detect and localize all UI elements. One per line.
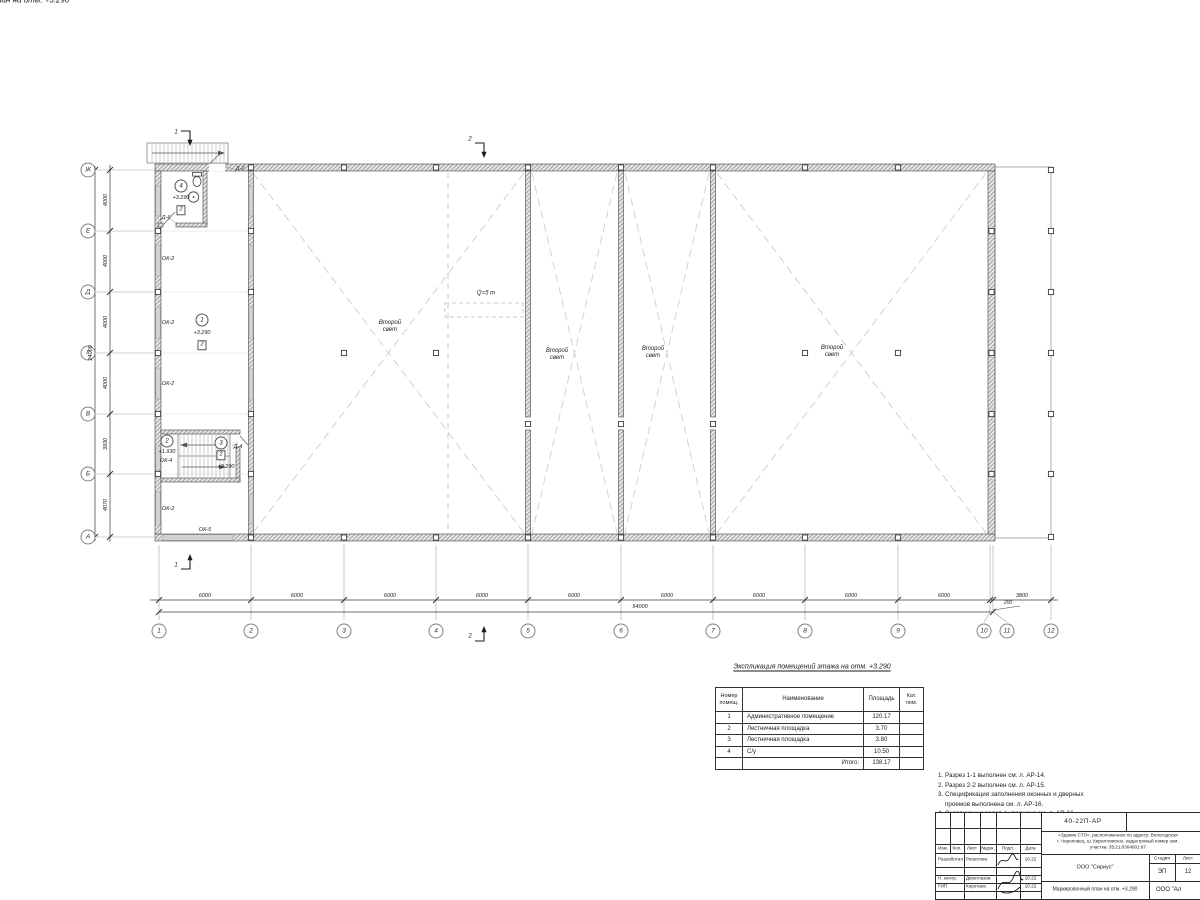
door-label: Д-2: [236, 166, 245, 172]
tb-drawing-title: Маркировочный план на отм. +3.290: [1053, 888, 1138, 893]
axis-bubble-7: 7: [706, 624, 721, 639]
tb-address-line: г. Череповец, ш. Кирилловское, кадастров…: [1057, 840, 1178, 845]
section-marks: [181, 131, 487, 641]
cell-area: 120.17: [864, 712, 900, 724]
door-label: Д-6: [162, 215, 171, 221]
dimension-lines: [95, 165, 1058, 612]
table-row: 4 С/у 10.50: [716, 746, 924, 758]
axis-bubble-2: 2: [244, 624, 259, 639]
cell-area: 3.80: [864, 735, 900, 747]
tb-organization: ООО "Сириус": [1077, 865, 1114, 871]
tb-col-ndok: №док.: [981, 846, 994, 851]
axis-bubble-v: В: [81, 407, 96, 422]
tb-role: Разработал: [938, 858, 963, 863]
cell-name: С/у: [743, 746, 864, 758]
axis-bubble-1: 1: [152, 624, 167, 639]
dimension-ticks: [92, 167, 1054, 615]
crane-capacity-label: Q=5 т: [477, 291, 495, 298]
tb-col-list: Лист: [967, 846, 977, 851]
tb-stage-value: ЭП: [1158, 869, 1167, 875]
section-mark-label: 2: [468, 634, 471, 641]
dim-label: 4000: [103, 255, 109, 267]
dim-label-total-height: 24000: [88, 345, 94, 360]
page-title: Маркировочный план на отм. +3.290: [0, 0, 69, 5]
cell-num: 3: [716, 735, 743, 747]
explication-title: Экспликация помещений этажа на отм. +3.2…: [733, 664, 890, 671]
window-openings: [156, 186, 253, 540]
sanitary-fixtures: [188, 173, 201, 203]
tb-role: Н. контр.: [938, 877, 957, 882]
door-opening-d2: [209, 164, 225, 172]
grid-extension-lines: [96, 170, 1051, 622]
note-line: 1. Разрез 1-1 выполнен см. л. АР-14.: [938, 771, 1084, 781]
dim-label: 4070: [103, 499, 109, 511]
cell-cat: [900, 735, 924, 747]
dim-label: 6000: [476, 593, 488, 599]
room-elevation: +1.930: [159, 449, 176, 455]
axis-bubble-5: 5: [521, 624, 536, 639]
dim-label-gap: 200: [1004, 601, 1012, 607]
cell-num: [716, 758, 743, 770]
axis-bubble-10: 10: [977, 624, 992, 639]
table-total-row: Итого: 138.17: [716, 758, 924, 770]
tb-doc-number: 40-22П-АР: [1064, 819, 1102, 826]
tb-name: Коротаев: [966, 885, 986, 890]
dim-label: 6000: [291, 593, 303, 599]
table-row: 2 Лестничная площадка 3.70: [716, 723, 924, 735]
tb-sheet-label: Лист: [1183, 856, 1193, 861]
floor-plan-linework: [0, 0, 1200, 900]
table-row: 3 Лестничная площадка 3.80: [716, 735, 924, 747]
col-header-area: Площадь: [864, 688, 900, 712]
dim-label: 3800: [1016, 593, 1028, 599]
col-header-category: Кат. пом.: [900, 688, 924, 712]
room-number-badge: 2: [161, 435, 174, 448]
dim-label-total-width: 54000: [632, 604, 647, 610]
dim-label: 4000: [103, 377, 109, 389]
room-category-badge: 2: [216, 450, 225, 460]
cell-cat: [900, 758, 924, 770]
axis-bubble-d: Д: [81, 285, 96, 300]
room-elevation: +3.290: [218, 464, 235, 470]
tb-stage-label: Стадия: [1154, 856, 1170, 861]
crane-runway: [445, 173, 523, 533]
section-mark-label: 2: [468, 137, 471, 144]
total-label: Итого:: [743, 758, 864, 770]
dim-label: 3930: [103, 438, 109, 450]
cell-cat: [900, 746, 924, 758]
window-label: ОК-2: [162, 381, 174, 387]
canopy-outline: [995, 167, 1051, 538]
door-label: Д-4: [234, 444, 243, 450]
signature-scribble: [996, 854, 1020, 868]
cell-num: 2: [716, 723, 743, 735]
axis-bubble-b: Б: [81, 467, 96, 482]
dim-label: 4000: [103, 316, 109, 328]
cell-num: 4: [716, 746, 743, 758]
dim-label: 6000: [199, 593, 211, 599]
signature-scribble: [994, 871, 1024, 895]
note-line: 3. Спецификация заполнения оконных и две…: [938, 790, 1084, 800]
axis-bubble-zh: Ж: [81, 163, 96, 178]
window-label: ОК-2: [162, 320, 174, 326]
columns: [155, 165, 1053, 540]
room-number-badge: 3: [215, 437, 228, 450]
note-line: проемов выполнена см. л. АР-16.: [938, 800, 1084, 810]
axis-bubble-3: 3: [337, 624, 352, 639]
dim-label: 6000: [938, 593, 950, 599]
cell-cat: [900, 723, 924, 735]
axis-bubble-9: 9: [891, 624, 906, 639]
cell-name: Лестничная площадка: [743, 723, 864, 735]
grid-lines-interior: [162, 231, 248, 474]
note-line: 2. Разрез 2-2 выполнен см. л. АР-15.: [938, 781, 1084, 791]
room-category-badge: 2: [176, 205, 185, 215]
tb-role: ГИП: [938, 885, 947, 890]
cell-name: Административное помещение: [743, 712, 864, 724]
axis-bubble-6: 6: [614, 624, 629, 639]
tb-name: Двоеглазов: [966, 877, 990, 882]
col-header-room-number: Номер помещ.: [716, 688, 743, 712]
axis-bubble-4: 4: [429, 624, 444, 639]
room-category-badge: 2: [197, 340, 206, 350]
room-number-badge: 4: [175, 180, 188, 193]
col-header-name: Наименование: [743, 688, 864, 712]
exterior-stair: [147, 143, 228, 163]
tb-date: 10.22: [1025, 877, 1037, 882]
second-light-label: Второй свет: [814, 345, 850, 359]
room-elevation: +3.290: [194, 330, 211, 336]
explication-table: Номер помещ. Наименование Площадь Кат. п…: [715, 687, 924, 770]
tb-name: Решетова: [966, 858, 987, 863]
axis-bubble-a: А: [81, 530, 96, 545]
tb-col-kol: Кол.: [952, 846, 961, 851]
title-block: Изм. Кол. Лист №док. Подл. Дата Разработ…: [935, 812, 1200, 900]
table-row: 1 Административное помещение 120.17: [716, 712, 924, 724]
total-value: 138.17: [864, 758, 900, 770]
cell-cat: [900, 712, 924, 724]
tb-address-line: «Здание СТО», расположенное по адресу: В…: [1058, 834, 1177, 839]
dim-label: 6000: [753, 593, 765, 599]
second-light-label: Второй свет: [539, 348, 575, 362]
cell-name: Лестничная площадка: [743, 735, 864, 747]
tb-date: 10.22: [1025, 858, 1037, 863]
tb-col-izm: Изм.: [938, 846, 948, 851]
second-light-label: Второй свет: [372, 320, 408, 334]
tb-date: 10.22: [1025, 885, 1037, 890]
axis-bubble-11: 11: [1000, 624, 1015, 639]
section-mark-label: 1: [174, 563, 177, 570]
tb-col-date: Дата: [1025, 846, 1035, 851]
window-label: ОК-5: [199, 527, 211, 533]
dim-label: 6000: [661, 593, 673, 599]
room-number-badge: 1: [196, 314, 209, 327]
tb-organization-2: ООО "Ал: [1156, 887, 1181, 893]
axis-bubble-8: 8: [798, 624, 813, 639]
dim-label: 6000: [384, 593, 396, 599]
tb-address-line: участка: 35:21:0304001:67: [1090, 846, 1146, 851]
dim-label: 6000: [568, 593, 580, 599]
window-label: ОК-2: [162, 256, 174, 262]
cell-num: 1: [716, 712, 743, 724]
drawing-sheet: Маркировочный план на отм. +3.290 1 2 3 …: [0, 0, 1200, 900]
section-mark-label: 1: [174, 130, 177, 137]
dim-label: 4000: [103, 194, 109, 206]
room-elevation: +3.290: [173, 195, 190, 201]
axis-bubble-e: Е: [81, 224, 96, 239]
tb-sheet-value: 12: [1185, 869, 1192, 875]
window-label: ОК-2: [162, 506, 174, 512]
dim-label: 6000: [845, 593, 857, 599]
axis-bubble-12: 12: [1044, 624, 1059, 639]
second-light-label: Второй свет: [635, 346, 671, 360]
window-label: ОК-4: [160, 458, 172, 464]
tb-col-podp: Подл.: [1002, 846, 1014, 851]
cell-area: 10.50: [864, 746, 900, 758]
cell-area: 3.70: [864, 723, 900, 735]
